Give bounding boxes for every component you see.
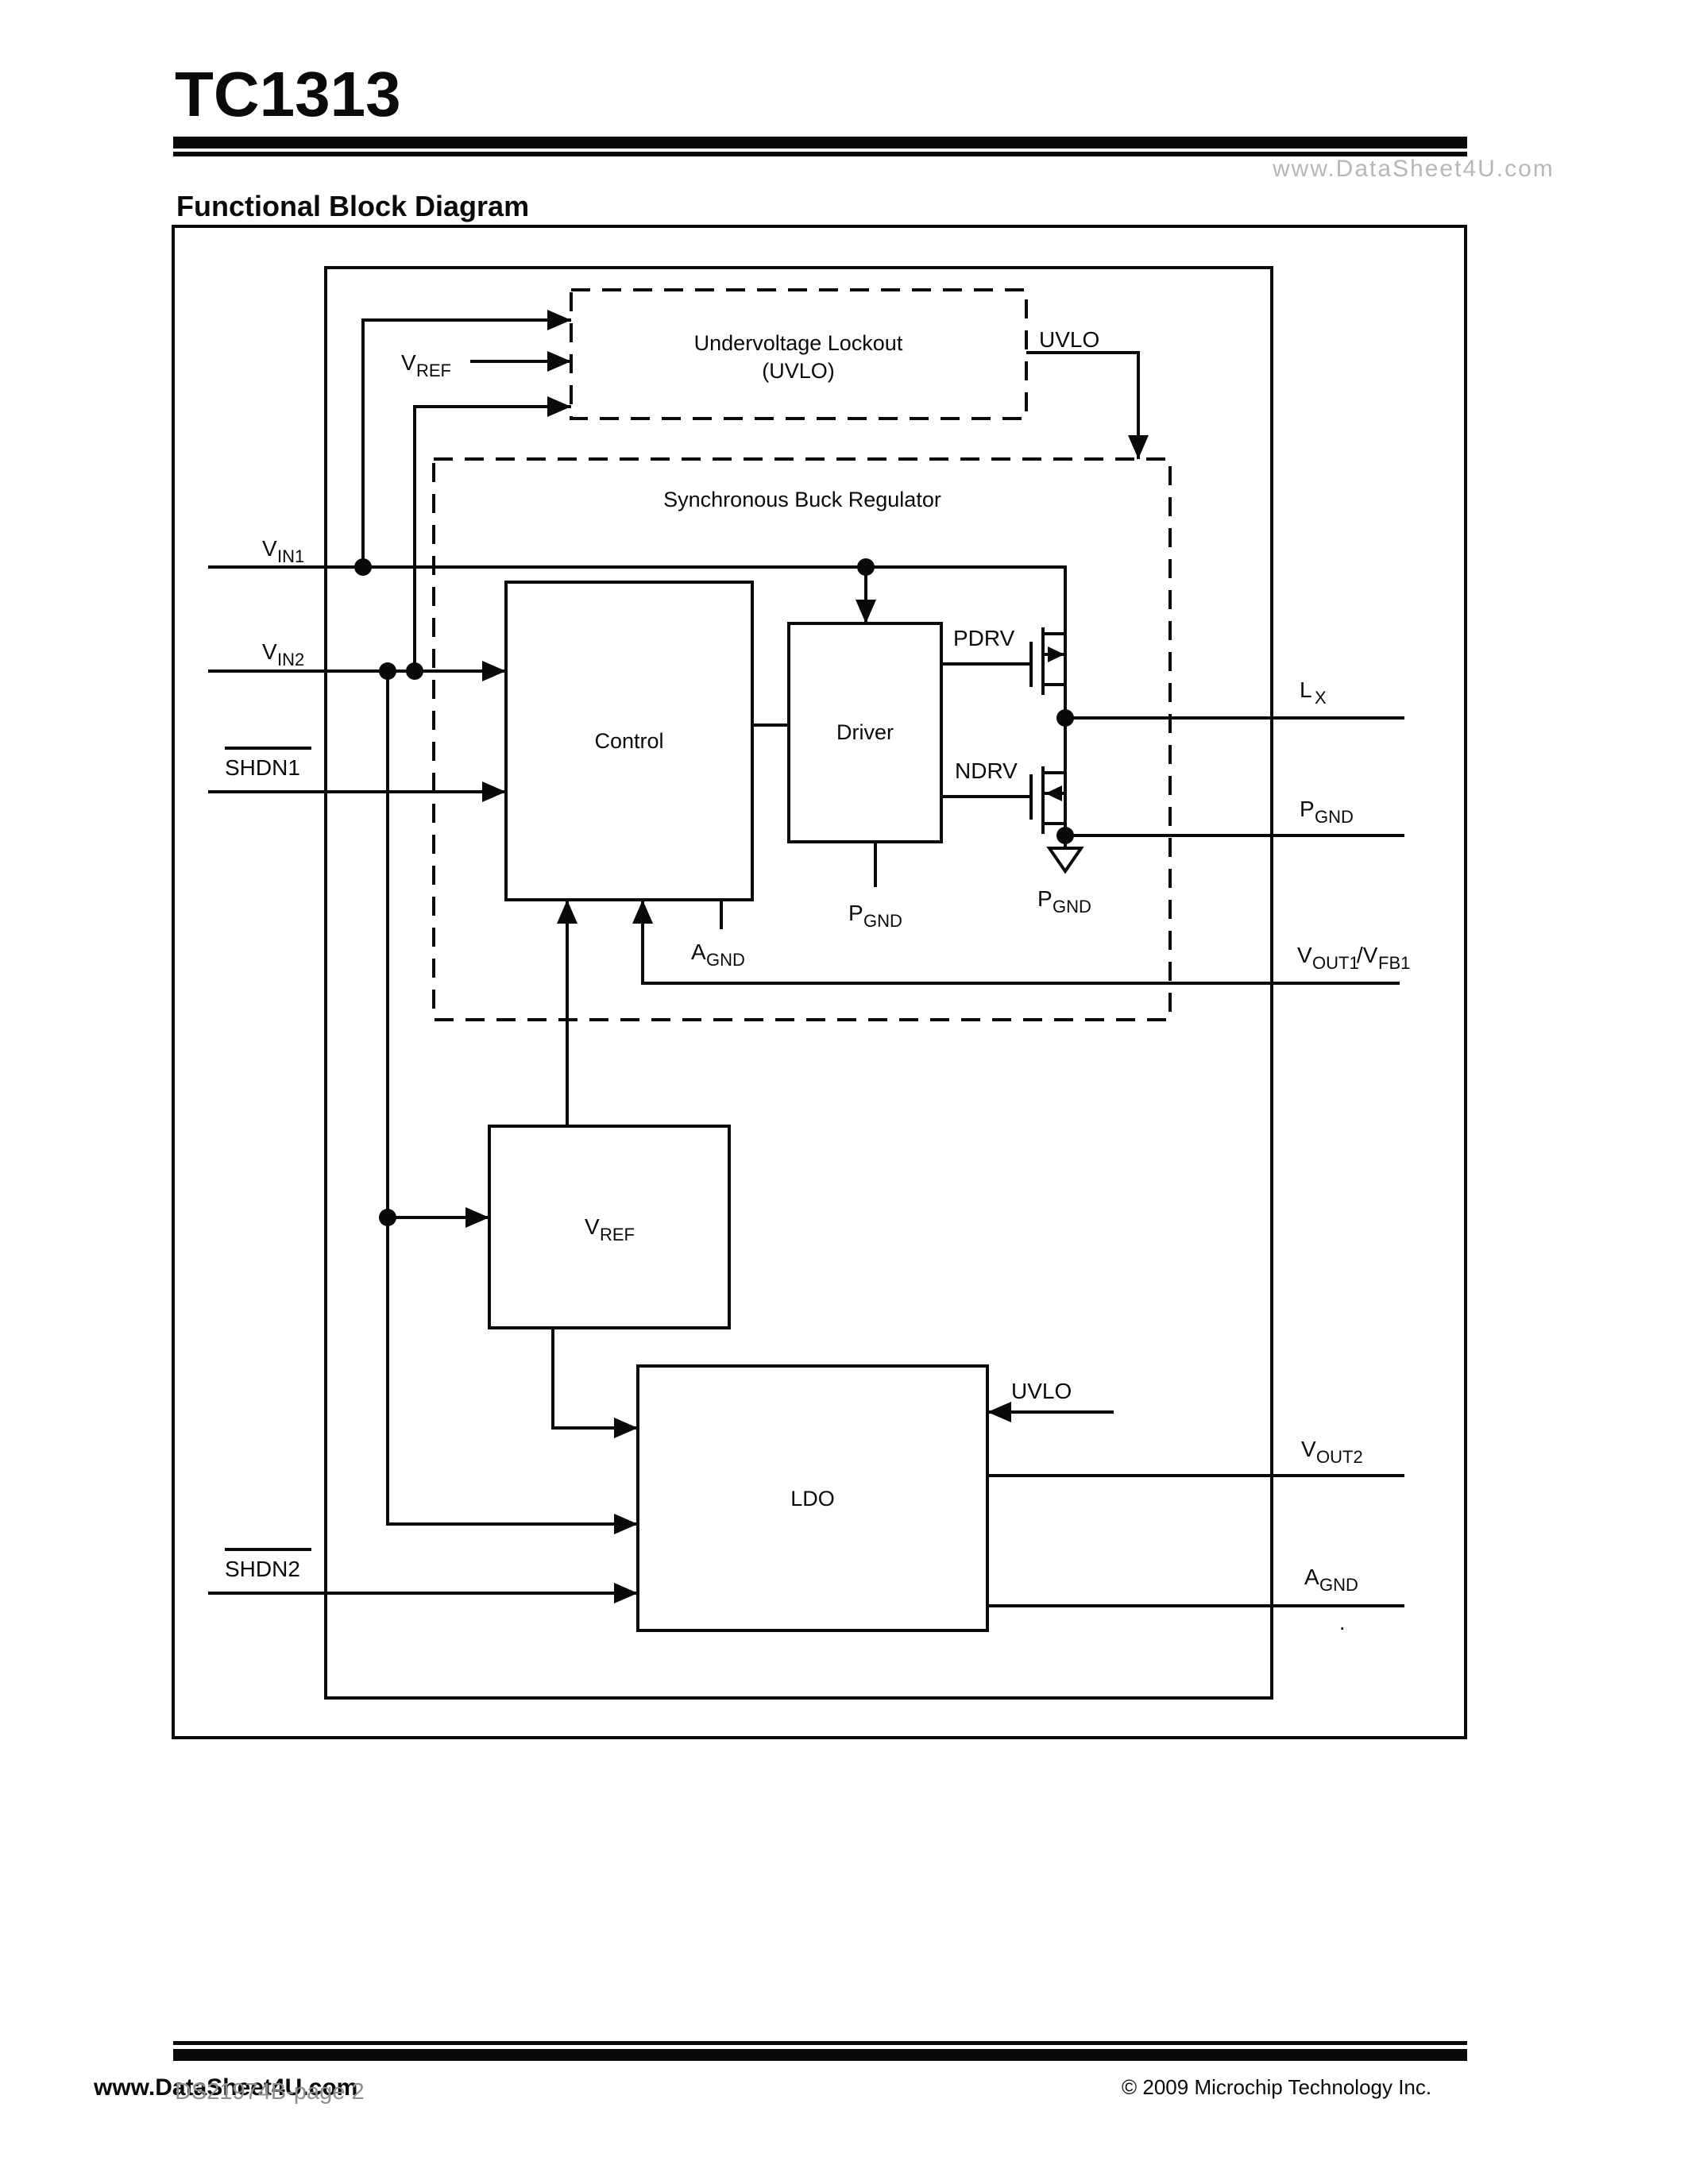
wire-uvlo-to-buck — [1026, 353, 1138, 459]
pmos-arrow — [1048, 646, 1064, 662]
wire-vin2-to-ldo — [388, 671, 638, 1524]
buck-regulator-label: Synchronous Buck Regulator — [663, 488, 941, 511]
pin-label-vin1: V — [262, 536, 277, 561]
pin-label-lx-sub: X — [1315, 688, 1327, 708]
pin-label-agnd-ldo-sub: GND — [1319, 1575, 1358, 1595]
junction-dot — [379, 662, 396, 680]
uvlo-block-label-line2: (UVLO) — [762, 359, 835, 383]
footer-rule-thick — [173, 2049, 1467, 2061]
wire-vref-to-ldo — [553, 1328, 638, 1428]
pin-label-pgnd-sub: GND — [1315, 807, 1354, 827]
footer-rule-thin — [173, 2041, 1467, 2045]
pin-label-vout2: V — [1301, 1437, 1316, 1461]
junction-dot — [1056, 827, 1074, 844]
vref-block-label: V — [585, 1214, 600, 1239]
pin-label-pgnd: P — [1300, 797, 1315, 821]
wire-vout1-feedback — [643, 900, 1400, 983]
pin-label-vfb1: /V — [1357, 943, 1378, 967]
junction-dot — [857, 558, 875, 576]
pin-label-vout2-sub: OUT2 — [1316, 1447, 1363, 1467]
pin-label-vin1-sub: IN1 — [277, 546, 304, 566]
junction-dot — [379, 1209, 396, 1226]
pin-label-vref-in-sub: REF — [416, 361, 451, 380]
functional-block-diagram: TC1313 www.DataSheet4U.com Functional Bl… — [0, 0, 1688, 2184]
signal-label-pdrv: PDRV — [953, 626, 1015, 650]
control-block-label: Control — [594, 729, 663, 753]
pin-label-shdn1: SHDN1 — [225, 755, 300, 780]
junction-dot — [354, 558, 372, 576]
signal-label-uvlo-ldo: UVLO — [1011, 1379, 1072, 1403]
signal-label-ndrv: NDRV — [955, 758, 1018, 783]
uvlo-block-label-line1: Undervoltage Lockout — [694, 331, 903, 355]
stray-period: . — [1339, 1611, 1346, 1634]
ldo-block-label: LDO — [790, 1487, 835, 1511]
page-title: TC1313 — [175, 59, 401, 129]
wire-vin1-to-uvlo — [363, 320, 571, 567]
header-rule-thick — [173, 137, 1467, 149]
driver-block-label: Driver — [836, 720, 894, 744]
junction-dot — [406, 662, 423, 680]
pmos-transistor — [1031, 627, 1065, 695]
watermark-top: www.DataSheet4U.com — [1272, 156, 1555, 182]
label-pgnd-fet: P — [1037, 886, 1053, 911]
wire-vin2-to-uvlo — [415, 407, 571, 671]
pin-label-agnd-ldo: A — [1304, 1565, 1319, 1589]
label-agnd-control-sub: GND — [706, 950, 745, 970]
datasheet-page: { "header": { "title": "TC1313", "waterm… — [0, 0, 1688, 2184]
pin-label-vout1: V — [1297, 943, 1312, 967]
vref-block-label-sub: REF — [600, 1225, 635, 1244]
label-pgnd-fet-sub: GND — [1053, 897, 1091, 916]
signal-label-uvlo-out: UVLO — [1039, 327, 1099, 352]
pin-label-vout1-sub1: OUT1 — [1312, 953, 1359, 973]
footer-copyright: © 2009 Microchip Technology Inc. — [1122, 2075, 1431, 2099]
buck-regulator-block — [434, 459, 1170, 1020]
footer-page-number: DS21974B-page 2 — [175, 2079, 365, 2105]
pin-label-vfb1-sub: FB1 — [1378, 953, 1410, 973]
pin-label-shdn2: SHDN2 — [225, 1557, 300, 1581]
pin-label-vref-in: V — [401, 350, 416, 375]
label-pgnd-driver-sub: GND — [863, 911, 902, 931]
wires — [208, 320, 1404, 1606]
pin-label-vin2-sub: IN2 — [277, 650, 304, 669]
nmos-arrow — [1045, 785, 1062, 801]
section-heading: Functional Block Diagram — [176, 190, 529, 222]
nmos-transistor — [1031, 766, 1065, 834]
pin-label-vin2: V — [262, 639, 277, 664]
label-agnd-control: A — [691, 940, 706, 964]
ground-triangle-icon — [1049, 848, 1081, 871]
junction-dot — [1056, 709, 1074, 727]
wire-vin1-rail — [208, 567, 1065, 718]
pin-label-lx: L — [1300, 677, 1312, 702]
label-pgnd-driver: P — [848, 901, 863, 925]
